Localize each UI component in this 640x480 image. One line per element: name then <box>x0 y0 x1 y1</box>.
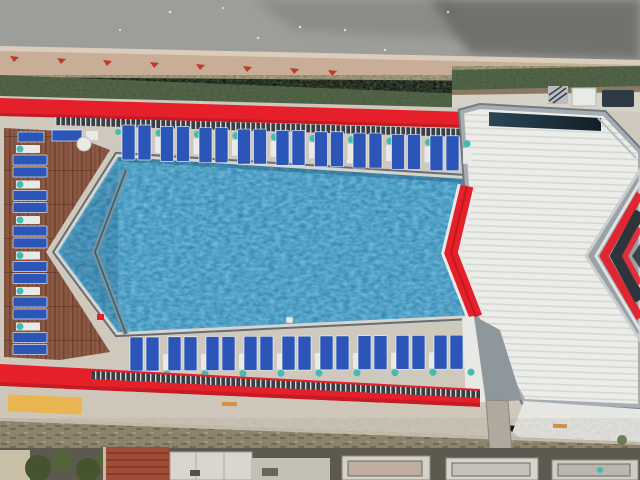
sun-lounger <box>13 167 47 177</box>
white-chair <box>463 148 472 164</box>
sun-lounger <box>320 336 333 370</box>
sun-lounger <box>13 274 47 284</box>
teal-side-table <box>17 323 24 330</box>
sun-lounger <box>138 125 151 160</box>
sun-lounger <box>184 337 197 371</box>
sun-lounger <box>215 128 228 163</box>
sun-lounger <box>13 345 47 355</box>
sun-lounger <box>18 132 44 142</box>
sun-lounger <box>254 129 267 164</box>
sun-lounger <box>331 132 344 167</box>
sun-lounger <box>199 128 212 163</box>
teal-side-table <box>278 370 285 377</box>
swimming-pool <box>50 150 480 340</box>
sun-lounger <box>430 136 443 171</box>
sun-lounger <box>450 335 463 369</box>
aerial-photo: Top-down drone view of a rooftop swimmin… <box>0 0 640 480</box>
sun-lounger <box>52 130 82 141</box>
teal-side-table <box>17 146 24 153</box>
sun-lounger <box>292 130 305 165</box>
sun-lounger <box>146 337 159 371</box>
sun-lounger <box>13 226 47 236</box>
sun-lounger <box>358 336 371 370</box>
sun-lounger <box>222 337 235 371</box>
sun-lounger <box>206 337 219 371</box>
sun-lounger <box>13 297 47 307</box>
white-parasol <box>77 137 91 151</box>
teal-side-table <box>354 369 361 376</box>
pool-ladder <box>286 317 293 323</box>
sun-lounger <box>446 136 459 171</box>
sun-lounger <box>13 309 47 319</box>
teal-side-table <box>115 129 121 135</box>
yellow-road-marking <box>8 394 83 414</box>
sun-lounger <box>434 335 447 369</box>
sun-lounger <box>244 336 257 370</box>
teal-side-table <box>240 370 247 377</box>
terracotta-roof-house <box>103 447 169 480</box>
sun-lounger <box>13 262 47 272</box>
sun-lounger <box>260 336 273 370</box>
sun-lounger <box>298 336 311 370</box>
sun-lounger <box>161 126 174 161</box>
teal-side-table <box>316 370 323 377</box>
teal-side-table <box>17 217 24 224</box>
sun-lounger <box>130 337 143 371</box>
sun-lounger <box>408 134 421 169</box>
white-chair <box>467 352 476 368</box>
equipment-dark-box <box>602 90 634 107</box>
sun-lounger <box>13 191 47 201</box>
sun-lounger <box>396 335 409 369</box>
sun-lounger <box>13 333 47 343</box>
teal-side-table <box>468 369 475 376</box>
teal-side-table <box>17 181 24 188</box>
teal-side-table <box>464 140 471 147</box>
teal-side-table <box>17 252 24 259</box>
sun-lounger <box>353 133 366 168</box>
sun-lounger <box>13 238 47 248</box>
sun-lounger <box>177 126 190 161</box>
sun-lounger <box>315 132 328 167</box>
sun-lounger <box>122 125 135 160</box>
orange-road-marking <box>553 424 567 428</box>
rooftop-teal-accent <box>597 467 603 473</box>
red-towel <box>97 314 104 320</box>
sun-lounger <box>412 335 425 369</box>
flat-roofs-right <box>342 456 638 480</box>
equipment-white-box <box>572 88 596 106</box>
sun-lounger <box>392 134 405 169</box>
sun-lounger <box>13 203 47 213</box>
sun-lounger <box>276 130 289 165</box>
sun-lounger <box>282 336 295 370</box>
sun-lounger <box>168 337 181 371</box>
sun-lounger <box>336 336 349 370</box>
sun-lounger <box>13 155 47 165</box>
aerial-photo-canvas <box>0 0 640 480</box>
sun-lounger <box>238 129 251 164</box>
teal-side-table <box>430 369 437 376</box>
teal-side-table <box>392 369 399 376</box>
orange-road-marking <box>222 402 237 407</box>
sun-lounger <box>374 336 387 370</box>
sun-lounger <box>369 133 382 168</box>
teal-side-table <box>17 288 24 295</box>
